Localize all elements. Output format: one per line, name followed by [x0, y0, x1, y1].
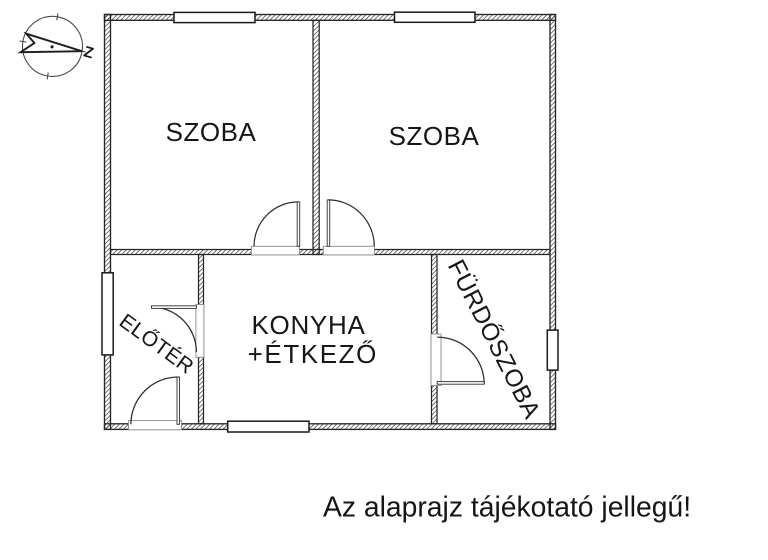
svg-text:Az alaprajz tájékotató jellegű: Az alaprajz tájékotató jellegű! [323, 490, 691, 522]
svg-text:SZOBA: SZOBA [389, 121, 480, 151]
svg-text:KONYHA: KONYHA [251, 310, 365, 340]
svg-text:SZOBA: SZOBA [166, 117, 257, 147]
svg-text:+ÉTKEZŐ: +ÉTKEZŐ [248, 339, 378, 369]
